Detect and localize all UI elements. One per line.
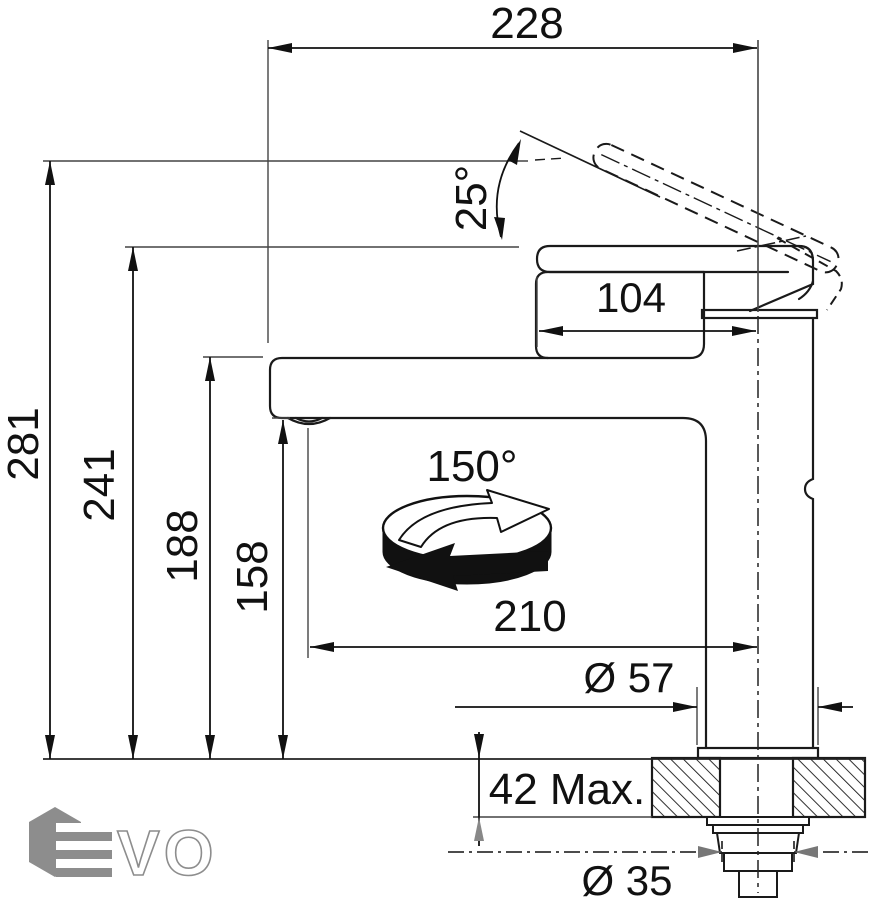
dim-spout-reach: 210 [493, 592, 566, 641]
extension-lines [43, 40, 818, 817]
dim-swivel-angle: 150° [426, 442, 517, 491]
dim-height-total: 281 [0, 407, 48, 480]
faucet-body-fills [272, 247, 818, 758]
dim-height-spout-top: 188 [158, 509, 207, 582]
counter-right-block [793, 758, 865, 817]
dim-hole-diameter: Ø 35 [581, 857, 672, 900]
swivel-symbol [383, 490, 551, 591]
dimension-labels: 228 25° 104 281 241 188 158 150° 210 Ø 5… [0, 0, 675, 900]
logo-e-bars-icon [56, 832, 112, 877]
dim-head-length: 104 [596, 274, 666, 321]
counter-left-block [652, 758, 720, 817]
dim-lever-angle: 25° [447, 165, 496, 232]
dim-base-diameter: Ø 57 [583, 654, 674, 701]
faucet-drawing-svg: 228 25° 104 281 241 188 158 150° 210 Ø 5… [0, 0, 871, 900]
dim-height-lever: 241 [75, 448, 124, 521]
dim-height-outlet: 158 [228, 540, 277, 613]
dim-overall-reach: 228 [490, 0, 563, 48]
logo-vo-text: VO [117, 817, 217, 889]
technical-drawing-canvas: 228 25° 104 281 241 188 158 150° 210 Ø 5… [0, 0, 871, 900]
evo-logo: VO [29, 807, 217, 889]
dim-deck-thickness: 42 Max. [489, 765, 646, 814]
